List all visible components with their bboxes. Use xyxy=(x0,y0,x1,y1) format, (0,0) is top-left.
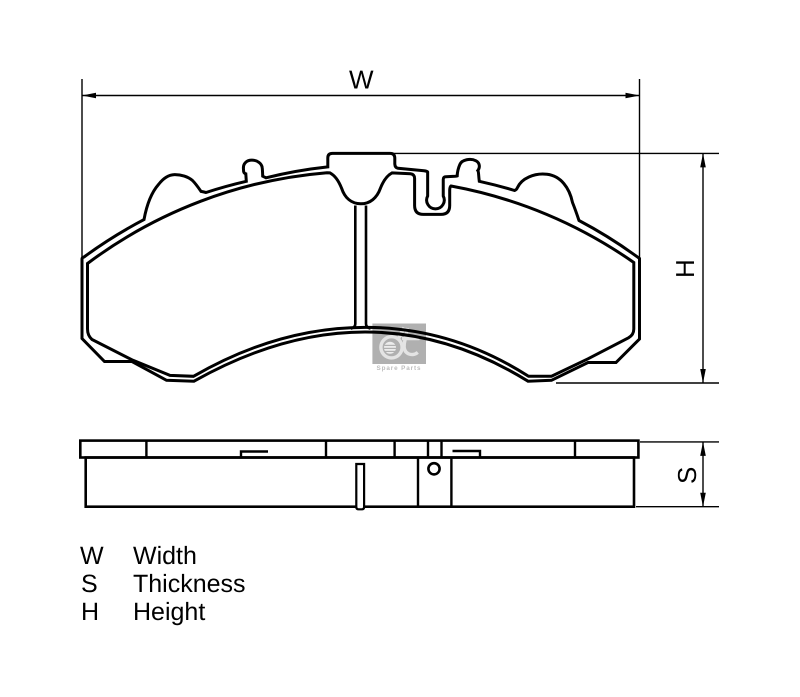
svg-text:S: S xyxy=(672,467,702,484)
svg-text:Spare Parts: Spare Parts xyxy=(377,365,422,372)
svg-text:S: S xyxy=(81,570,98,598)
svg-text:H: H xyxy=(670,259,700,278)
svg-text:Height: Height xyxy=(133,598,205,626)
svg-text:W: W xyxy=(349,65,374,95)
svg-text:H: H xyxy=(81,598,99,626)
svg-text:Width: Width xyxy=(133,542,197,570)
svg-text:W: W xyxy=(80,542,104,570)
svg-text:Thickness: Thickness xyxy=(133,570,246,598)
